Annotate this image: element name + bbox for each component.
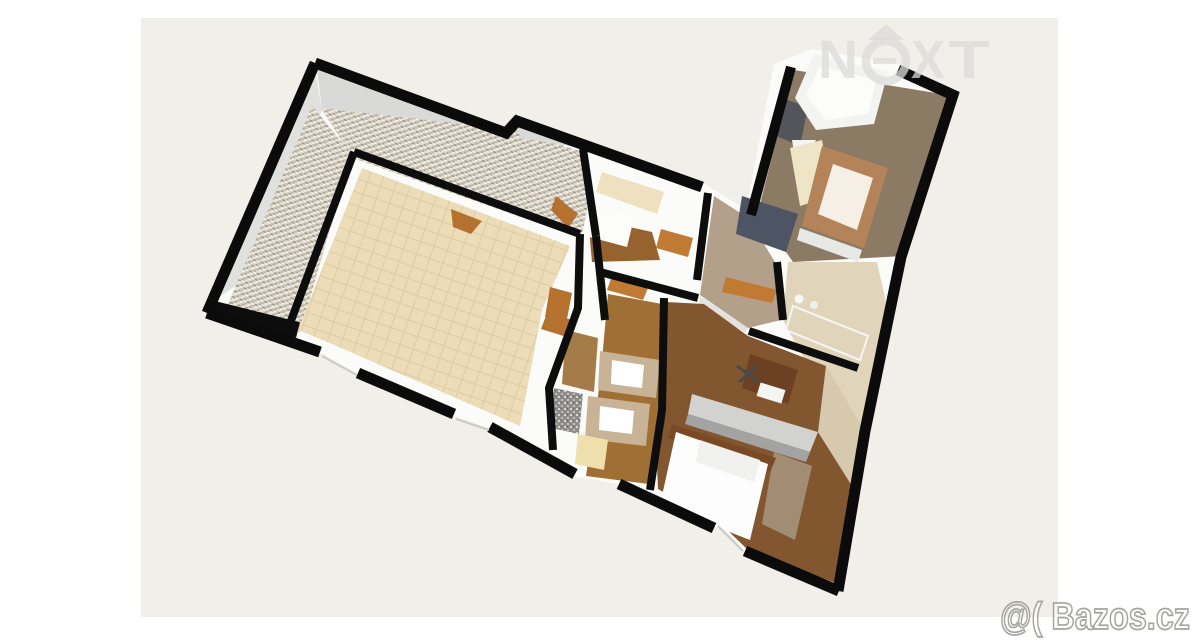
svg-text:X: X xyxy=(911,30,945,90)
svg-text:N: N xyxy=(818,30,858,90)
svg-text:@( Bazos.cz: @( Bazos.cz xyxy=(1000,596,1190,638)
svg-text:T: T xyxy=(948,30,990,90)
